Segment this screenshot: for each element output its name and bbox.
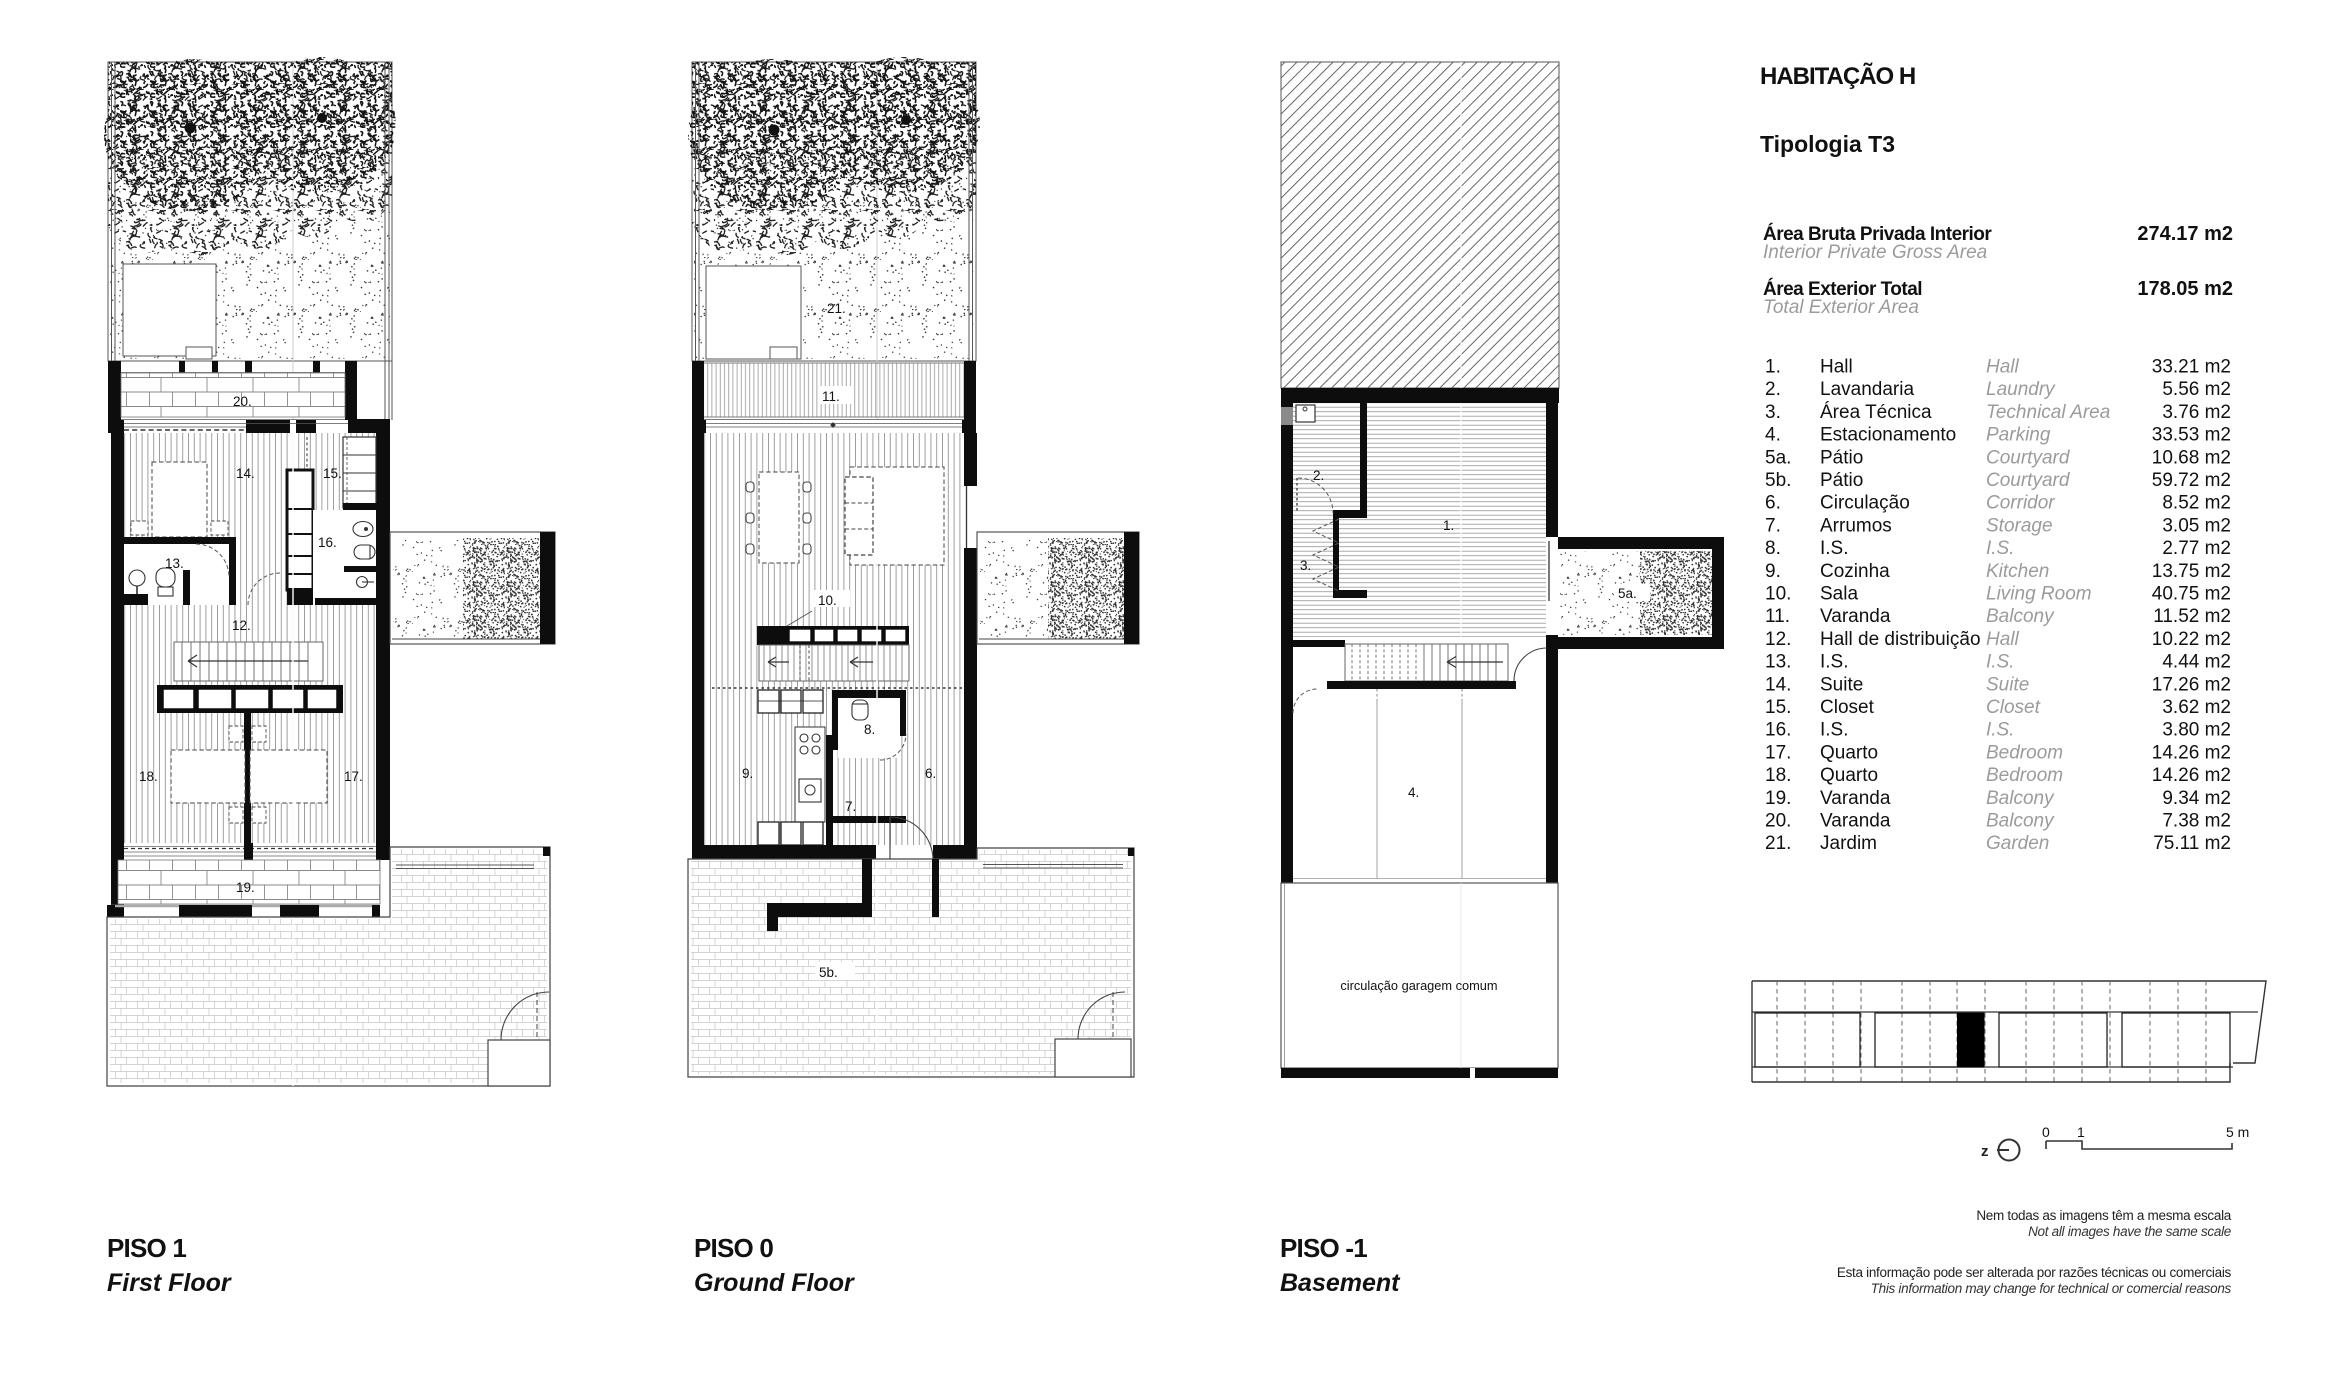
svg-text:5a.: 5a. (1618, 586, 1637, 601)
svg-text:Garden: Garden (1986, 833, 2049, 854)
svg-text:75.11 m2: 75.11 m2 (2153, 833, 2231, 854)
svg-text:0: 0 (2042, 1124, 2050, 1140)
svg-text:2.77 m2: 2.77 m2 (2162, 538, 2231, 559)
svg-text:10.: 10. (1765, 584, 1791, 605)
svg-text:9.: 9. (742, 766, 753, 781)
svg-text:Storage: Storage (1986, 515, 2053, 536)
svg-text:17.: 17. (344, 769, 363, 784)
svg-text:274.17 m2: 274.17 m2 (2137, 223, 2233, 245)
svg-text:Basement: Basement (1280, 1269, 1401, 1297)
svg-text:15.: 15. (1765, 697, 1791, 718)
svg-text:Sala: Sala (1820, 584, 1858, 605)
svg-text:Lavandaria: Lavandaria (1820, 379, 1914, 400)
svg-text:Total Exterior Area: Total Exterior Area (1763, 297, 1919, 318)
svg-text:Estacionamento: Estacionamento (1820, 425, 1956, 446)
svg-text:9.: 9. (1765, 561, 1781, 582)
svg-text:Arrumos: Arrumos (1820, 515, 1892, 536)
svg-text:178.05 m2: 178.05 m2 (2137, 278, 2233, 300)
svg-text:14.26 m2: 14.26 m2 (2152, 742, 2231, 763)
svg-text:I.S.: I.S. (1820, 652, 1849, 673)
svg-text:circulação garagem comum: circulação garagem comum (1340, 978, 1497, 993)
svg-text:I.S.: I.S. (1820, 538, 1849, 559)
svg-text:Quarto: Quarto (1820, 765, 1878, 786)
svg-text:33.21 m2: 33.21 m2 (2152, 357, 2231, 378)
svg-text:8.: 8. (864, 722, 875, 737)
svg-text:10.22 m2: 10.22 m2 (2152, 629, 2231, 650)
svg-text:I.S.: I.S. (1986, 652, 2015, 673)
svg-text:59.72 m2: 59.72 m2 (2152, 470, 2231, 491)
svg-text:I.S.: I.S. (1820, 720, 1849, 741)
svg-text:3.62 m2: 3.62 m2 (2162, 697, 2231, 718)
svg-text:PISO 1: PISO 1 (107, 1233, 186, 1263)
svg-text:Suite: Suite (1820, 674, 1863, 695)
svg-text:19.: 19. (236, 880, 255, 895)
svg-text:4.44 m2: 4.44 m2 (2162, 652, 2231, 673)
svg-text:Área Técnica: Área Técnica (1820, 402, 1932, 423)
svg-text:Hall: Hall (1820, 357, 1853, 378)
svg-text:10.68 m2: 10.68 m2 (2152, 447, 2231, 468)
svg-text:2.: 2. (1765, 379, 1781, 400)
svg-text:5 m: 5 m (2226, 1124, 2249, 1140)
svg-text:PISO -1: PISO -1 (1280, 1233, 1367, 1263)
svg-text:This information may change fo: This information may change for technica… (1871, 1281, 2232, 1296)
svg-text:3.: 3. (1765, 402, 1781, 423)
svg-text:Not all images have the same s: Not all images have the same scale (2028, 1224, 2231, 1239)
svg-text:Balcony: Balcony (1986, 606, 2055, 627)
svg-text:1.: 1. (1765, 357, 1781, 378)
svg-text:Interior Private Gross Area: Interior Private Gross Area (1763, 242, 1987, 263)
svg-text:7.38 m2: 7.38 m2 (2162, 811, 2231, 832)
svg-text:11.52 m2: 11.52 m2 (2153, 606, 2231, 627)
svg-text:16.: 16. (1765, 720, 1791, 741)
svg-text:Esta informação pode ser alter: Esta informação pode ser alterada por ra… (1837, 1265, 2232, 1280)
svg-text:Kitchen: Kitchen (1986, 561, 2049, 582)
svg-text:Technical Area: Technical Area (1986, 402, 2110, 423)
svg-text:Varanda: Varanda (1820, 811, 1891, 832)
svg-text:Jardim: Jardim (1820, 833, 1877, 854)
svg-text:21.: 21. (827, 301, 846, 316)
svg-text:Hall: Hall (1986, 357, 2020, 378)
svg-text:2.: 2. (1313, 468, 1324, 483)
svg-text:19.: 19. (1765, 788, 1791, 809)
svg-text:5.56 m2: 5.56 m2 (2162, 379, 2231, 400)
svg-text:Laundry: Laundry (1986, 379, 2056, 400)
svg-text:First Floor: First Floor (107, 1269, 232, 1297)
svg-text:Ground Floor: Ground Floor (694, 1269, 855, 1297)
svg-text:Nem todas as imagens têm a mes: Nem todas as imagens têm a mesma escala (1976, 1208, 2231, 1223)
svg-text:1: 1 (2077, 1124, 2085, 1140)
svg-text:17.: 17. (1765, 742, 1791, 763)
svg-text:z: z (1981, 1143, 1989, 1160)
svg-text:PISO 0: PISO 0 (694, 1233, 773, 1263)
svg-text:Varanda: Varanda (1820, 788, 1891, 809)
svg-text:4.: 4. (1408, 785, 1419, 800)
svg-text:Bedroom: Bedroom (1986, 742, 2063, 763)
svg-text:18.: 18. (139, 769, 158, 784)
svg-text:4.: 4. (1765, 425, 1781, 446)
svg-text:11.: 11. (822, 389, 840, 404)
svg-text:7.: 7. (845, 799, 856, 814)
svg-text:5b.: 5b. (1765, 470, 1791, 491)
svg-text:3.80 m2: 3.80 m2 (2162, 720, 2231, 741)
svg-text:21.: 21. (1765, 833, 1791, 854)
svg-text:Living Room: Living Room (1986, 584, 2092, 605)
svg-text:12.: 12. (1765, 629, 1791, 650)
svg-text:5a.: 5a. (1765, 447, 1791, 468)
svg-text:6.: 6. (925, 766, 936, 781)
svg-text:14.: 14. (1765, 674, 1791, 695)
svg-text:Closet: Closet (1820, 697, 1875, 718)
svg-text:3.: 3. (1300, 558, 1311, 573)
svg-text:I.S.: I.S. (1986, 538, 2015, 559)
svg-text:Courtyard: Courtyard (1986, 470, 2071, 491)
svg-text:Pátio: Pátio (1820, 470, 1863, 491)
svg-text:3.76 m2: 3.76 m2 (2162, 402, 2231, 423)
svg-text:I.S.: I.S. (1986, 720, 2015, 741)
svg-text:5b.: 5b. (819, 965, 838, 980)
svg-text:Hall de distribuição: Hall de distribuição (1820, 629, 1981, 650)
svg-text:17.26 m2: 17.26 m2 (2152, 674, 2231, 695)
svg-text:Suite: Suite (1986, 674, 2029, 695)
svg-text:9.34 m2: 9.34 m2 (2162, 788, 2231, 809)
svg-text:HABITAÇÃO H: HABITAÇÃO H (1760, 62, 1915, 90)
svg-text:8.: 8. (1765, 538, 1781, 559)
svg-text:13.: 13. (1765, 652, 1791, 673)
svg-text:16.: 16. (318, 535, 337, 550)
svg-text:8.52 m2: 8.52 m2 (2162, 493, 2231, 514)
svg-text:Bedroom: Bedroom (1986, 765, 2063, 786)
svg-text:Balcony: Balcony (1986, 788, 2055, 809)
svg-text:Circulação: Circulação (1820, 493, 1910, 514)
svg-text:13.75 m2: 13.75 m2 (2152, 561, 2231, 582)
svg-text:Hall: Hall (1986, 629, 2020, 650)
svg-text:20.: 20. (233, 394, 252, 409)
svg-text:18.: 18. (1765, 765, 1791, 786)
svg-text:Courtyard: Courtyard (1986, 447, 2071, 468)
svg-text:3.05 m2: 3.05 m2 (2162, 515, 2231, 536)
svg-text:13.: 13. (165, 556, 184, 571)
svg-text:15.: 15. (323, 466, 342, 481)
svg-text:Tipologia T3: Tipologia T3 (1760, 131, 1895, 157)
svg-text:Corridor: Corridor (1986, 493, 2055, 514)
svg-text:11.: 11. (1765, 606, 1790, 627)
svg-text:14.26 m2: 14.26 m2 (2152, 765, 2231, 786)
svg-text:Quarto: Quarto (1820, 742, 1878, 763)
svg-text:Parking: Parking (1986, 425, 2051, 446)
svg-text:Cozinha: Cozinha (1820, 561, 1890, 582)
svg-text:14.: 14. (236, 466, 255, 481)
svg-text:12.: 12. (232, 618, 251, 633)
svg-text:10.: 10. (818, 593, 837, 608)
svg-text:1.: 1. (1443, 518, 1454, 533)
svg-text:33.53 m2: 33.53 m2 (2152, 425, 2231, 446)
svg-text:20.: 20. (1765, 811, 1791, 832)
svg-text:7.: 7. (1765, 515, 1781, 536)
svg-text:Pátio: Pátio (1820, 447, 1863, 468)
svg-text:Closet: Closet (1986, 697, 2041, 718)
svg-text:Balcony: Balcony (1986, 811, 2055, 832)
svg-text:Varanda: Varanda (1820, 606, 1891, 627)
svg-text:40.75 m2: 40.75 m2 (2152, 584, 2231, 605)
svg-text:6.: 6. (1765, 493, 1781, 514)
